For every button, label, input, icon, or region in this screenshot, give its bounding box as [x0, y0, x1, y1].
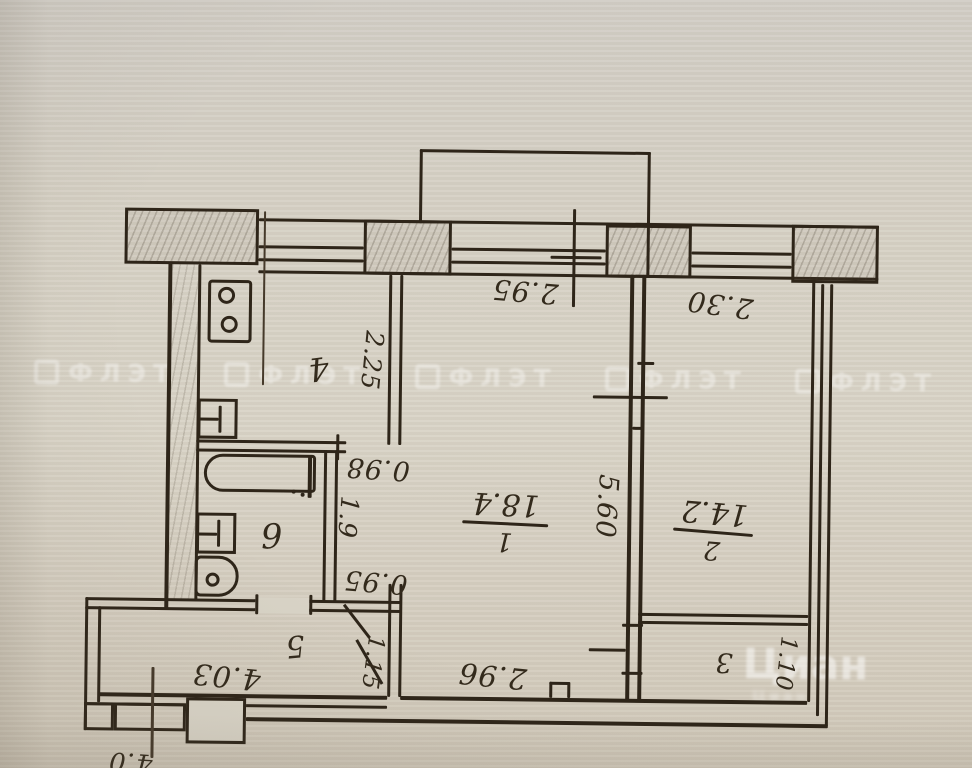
room-2-area-label: 2 14.2	[671, 492, 756, 568]
watermark-band: ФЛЭТ ФЛЭТ ФЛЭТ ФЛЭТ ФЛЭТ	[0, 348, 972, 406]
room-label-5: 5	[283, 627, 306, 664]
wall-line	[85, 597, 401, 604]
dimension-5-60: 5.60	[589, 473, 624, 539]
window-line	[452, 248, 606, 252]
bathtub-icon-detail	[301, 493, 305, 497]
room-2-area: 14.2	[680, 492, 749, 532]
wall-pier	[124, 208, 259, 266]
wall-line	[196, 439, 346, 444]
dimension-4-03: 4.03	[191, 657, 263, 698]
wall-pier	[791, 225, 879, 284]
bathtub-icon-detail	[292, 490, 296, 494]
watermark-logo-icon	[795, 368, 820, 393]
watermark-text: ФЛЭТ	[639, 364, 748, 394]
dimension-1-15: 1.15	[356, 634, 389, 692]
wall-line	[398, 584, 402, 697]
door-jamb-tick	[622, 624, 643, 627]
watermark-unit: ФЛЭТ	[34, 357, 177, 388]
dimension-2-30: 2.30	[685, 284, 755, 326]
balcony-outline	[420, 149, 651, 155]
wall-line	[322, 450, 327, 602]
wall-line	[246, 717, 828, 728]
wall-line	[85, 606, 401, 613]
wash-sink-icon-detail	[217, 520, 220, 547]
wash-sink-icon-detail	[196, 532, 217, 535]
window-line	[692, 252, 792, 256]
dimension-0-95: 0.95	[342, 564, 408, 600]
door-opening	[255, 597, 309, 614]
room-label-3: 3	[714, 646, 733, 678]
wall-line	[97, 606, 101, 702]
watermark-text: ФЛЭТ	[448, 362, 557, 392]
dimension-1-9: 1.9	[332, 495, 364, 540]
dimension-tick	[632, 427, 643, 430]
corner-note: 4.0	[107, 745, 153, 768]
watermark-text: ФЛЭТ	[68, 357, 177, 387]
wall-line	[258, 270, 878, 281]
wall-line	[625, 275, 634, 702]
dimension-2-95: 2.95	[491, 272, 560, 310]
window-line	[258, 258, 363, 262]
watermark-logo-icon	[605, 366, 630, 391]
kitchen-sink-icon-detail	[198, 417, 219, 420]
door-jamb-tick	[621, 672, 642, 675]
stove-burner-icon	[221, 316, 238, 333]
room-label-6: 6	[259, 514, 283, 555]
dimension-2-25: 2.25	[355, 329, 390, 391]
wall-line	[638, 621, 808, 626]
bathtub-icon	[204, 454, 316, 493]
bathtub-icon-detail	[308, 457, 312, 498]
room-label-2: 2	[702, 534, 721, 565]
wall-line	[259, 218, 879, 229]
entry-step	[84, 702, 114, 730]
stove-burner-icon	[218, 287, 235, 304]
scanned-floor-plan-sheet: ФЛЭТ ФЛЭТ ФЛЭТ ФЛЭТ ФЛЭТ Циан Циан	[0, 0, 972, 768]
room-1-area-label: 1 18.4	[461, 484, 550, 558]
dimension-2-96: 2.96	[457, 656, 529, 697]
wall-line	[400, 696, 807, 704]
kitchen-sink-icon-detail	[218, 406, 221, 433]
wall-line	[637, 275, 646, 702]
window-line	[691, 265, 791, 269]
dimension-tick	[637, 362, 654, 365]
entrance-door-mark	[549, 682, 569, 685]
watermark-unit: ФЛЭТ	[224, 359, 367, 390]
entry-step	[186, 697, 247, 744]
watermark-unit: ФЛЭТ	[414, 362, 557, 393]
wall-hatch	[168, 264, 198, 599]
door-jamb-tick	[255, 594, 258, 614]
floor-plan-drawing: ФЛЭТ ФЛЭТ ФЛЭТ ФЛЭТ ФЛЭТ Циан Циан	[0, 0, 972, 768]
room-1-area: 18.4	[472, 485, 540, 523]
wall-pier	[363, 219, 452, 275]
watermark-unit: ФЛЭТ	[795, 366, 938, 397]
watermark-unit: ФЛЭТ	[605, 364, 748, 395]
watermark-logo-icon	[224, 361, 249, 386]
watermark-text: ФЛЭТ	[829, 367, 938, 397]
door-jamb-tick	[309, 595, 312, 615]
balcony-outline	[419, 149, 423, 223]
window-line	[259, 245, 364, 249]
wall-line	[807, 280, 815, 702]
window-line	[451, 261, 605, 265]
dimension-tick	[589, 648, 626, 651]
room-label-1: 1	[495, 526, 513, 557]
watermark-cian: Циан	[742, 639, 868, 690]
dimension-0-98: 0.98	[345, 451, 411, 486]
toilet-icon-detail	[206, 573, 220, 587]
dimension-tick	[551, 256, 602, 259]
wall-line	[638, 613, 808, 618]
watermark-logo-icon	[34, 359, 59, 384]
watermark-logo-icon	[414, 364, 439, 389]
